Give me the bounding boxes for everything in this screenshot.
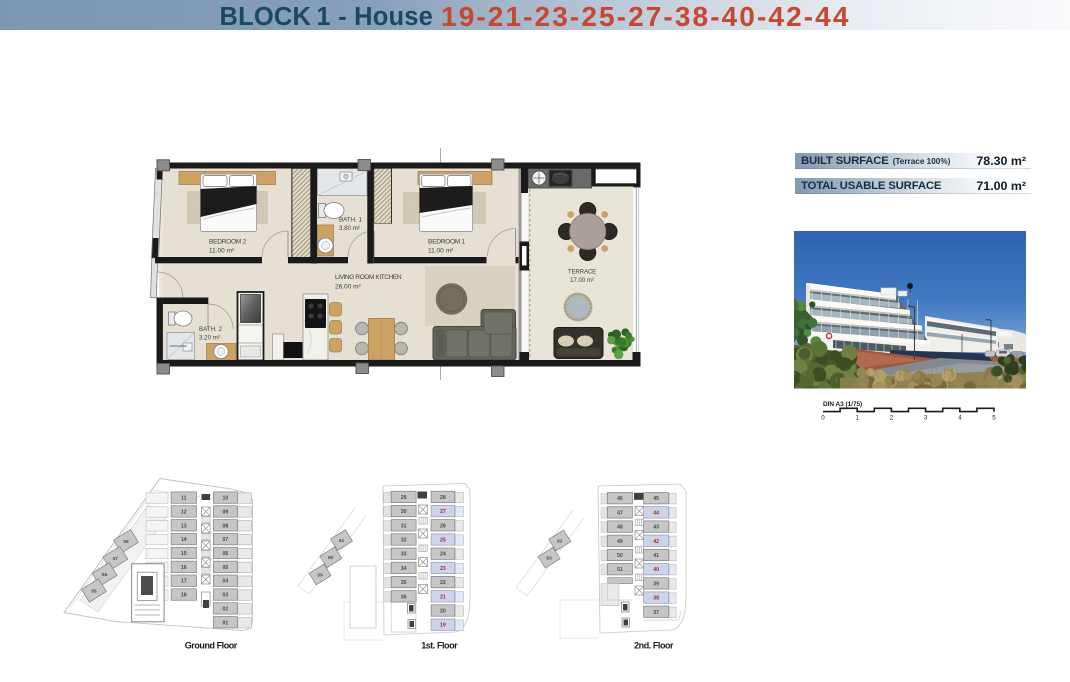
svg-text:BATH. 2: BATH. 2: [199, 326, 222, 333]
svg-text:47: 47: [617, 510, 623, 516]
svg-text:TERRACE: TERRACE: [568, 268, 596, 275]
svg-text:39: 39: [653, 581, 659, 587]
svg-text:1st. Floor: 1st. Floor: [421, 641, 458, 651]
svg-text:38: 38: [653, 596, 659, 602]
svg-text:13: 13: [181, 523, 187, 529]
svg-text:04: 04: [222, 579, 228, 585]
svg-text:16: 16: [181, 565, 187, 571]
svg-text:11.00 m²: 11.00 m²: [209, 248, 235, 255]
svg-text:31: 31: [401, 523, 407, 529]
svg-text:11.00 m²: 11.00 m²: [428, 248, 454, 255]
svg-text:LIVING ROOM KITCHEN: LIVING ROOM KITCHEN: [335, 274, 402, 281]
svg-text:59: 59: [317, 572, 323, 578]
svg-text:49: 49: [617, 539, 623, 545]
svg-text:26.00 m²: 26.00 m²: [335, 284, 361, 291]
svg-text:11: 11: [181, 496, 187, 502]
svg-text:57: 57: [113, 556, 119, 562]
svg-text:45: 45: [653, 496, 659, 502]
svg-text:23: 23: [440, 566, 446, 572]
svg-text:24: 24: [440, 552, 446, 558]
svg-text:25: 25: [440, 538, 446, 544]
svg-text:30: 30: [401, 509, 407, 515]
svg-text:18: 18: [181, 593, 187, 599]
svg-text:28: 28: [440, 495, 446, 501]
svg-text:22: 22: [440, 580, 446, 586]
svg-text:20: 20: [440, 609, 446, 615]
svg-text:BATH. 1: BATH. 1: [339, 217, 362, 224]
svg-text:50: 50: [617, 553, 623, 559]
svg-text:0: 0: [821, 415, 825, 422]
svg-text:09: 09: [222, 509, 228, 515]
svg-text:05: 05: [222, 565, 228, 571]
svg-text:1: 1: [855, 415, 859, 422]
svg-text:60: 60: [328, 555, 334, 561]
svg-text:29: 29: [401, 495, 407, 501]
svg-text:34: 34: [401, 566, 407, 572]
svg-text:DIN A3 (1/75): DIN A3 (1/75): [823, 401, 862, 408]
svg-text:58: 58: [123, 539, 129, 545]
svg-text:44: 44: [653, 510, 659, 516]
svg-text:14: 14: [181, 537, 187, 543]
svg-text:BEDROOM 1: BEDROOM 1: [428, 239, 466, 246]
svg-text:15: 15: [181, 551, 187, 557]
svg-text:01: 01: [222, 620, 228, 626]
svg-text:51: 51: [617, 567, 623, 573]
svg-text:35: 35: [401, 580, 407, 586]
svg-text:21: 21: [440, 594, 446, 600]
svg-text:42: 42: [653, 539, 659, 545]
svg-text:03: 03: [222, 593, 228, 599]
svg-text:5: 5: [992, 415, 996, 422]
svg-text:43: 43: [653, 525, 659, 531]
svg-text:32: 32: [401, 538, 407, 544]
svg-text:06: 06: [222, 551, 228, 557]
svg-text:17: 17: [181, 579, 187, 585]
svg-text:48: 48: [617, 525, 623, 531]
svg-text:40: 40: [653, 567, 659, 573]
svg-text:37: 37: [653, 610, 659, 616]
svg-text:2nd. Floor: 2nd. Floor: [634, 641, 674, 651]
svg-text:55: 55: [91, 588, 97, 594]
svg-text:02: 02: [222, 606, 228, 612]
svg-text:2: 2: [890, 415, 894, 422]
svg-text:19: 19: [440, 623, 446, 629]
svg-text:BEDROOM 2: BEDROOM 2: [209, 239, 247, 246]
svg-text:62: 62: [557, 538, 563, 544]
svg-text:26: 26: [440, 523, 446, 529]
svg-text:3.20 m²: 3.20 m²: [199, 335, 220, 342]
svg-text:63: 63: [546, 556, 552, 562]
svg-text:4: 4: [958, 415, 962, 422]
svg-text:33: 33: [401, 552, 407, 558]
svg-text:36: 36: [401, 594, 407, 600]
svg-text:08: 08: [222, 523, 228, 529]
svg-text:56: 56: [102, 572, 108, 578]
svg-text:41: 41: [653, 553, 659, 559]
svg-text:17.00 m²: 17.00 m²: [570, 278, 594, 284]
svg-text:Ground Floor: Ground Floor: [185, 641, 238, 651]
svg-text:61: 61: [339, 538, 345, 544]
svg-text:3.80 m²: 3.80 m²: [339, 225, 360, 232]
svg-text:27: 27: [440, 509, 446, 515]
svg-text:10: 10: [222, 496, 228, 502]
svg-text:3: 3: [924, 415, 928, 422]
svg-text:07: 07: [222, 537, 228, 543]
svg-text:46: 46: [617, 496, 623, 502]
svg-text:12: 12: [181, 509, 187, 515]
